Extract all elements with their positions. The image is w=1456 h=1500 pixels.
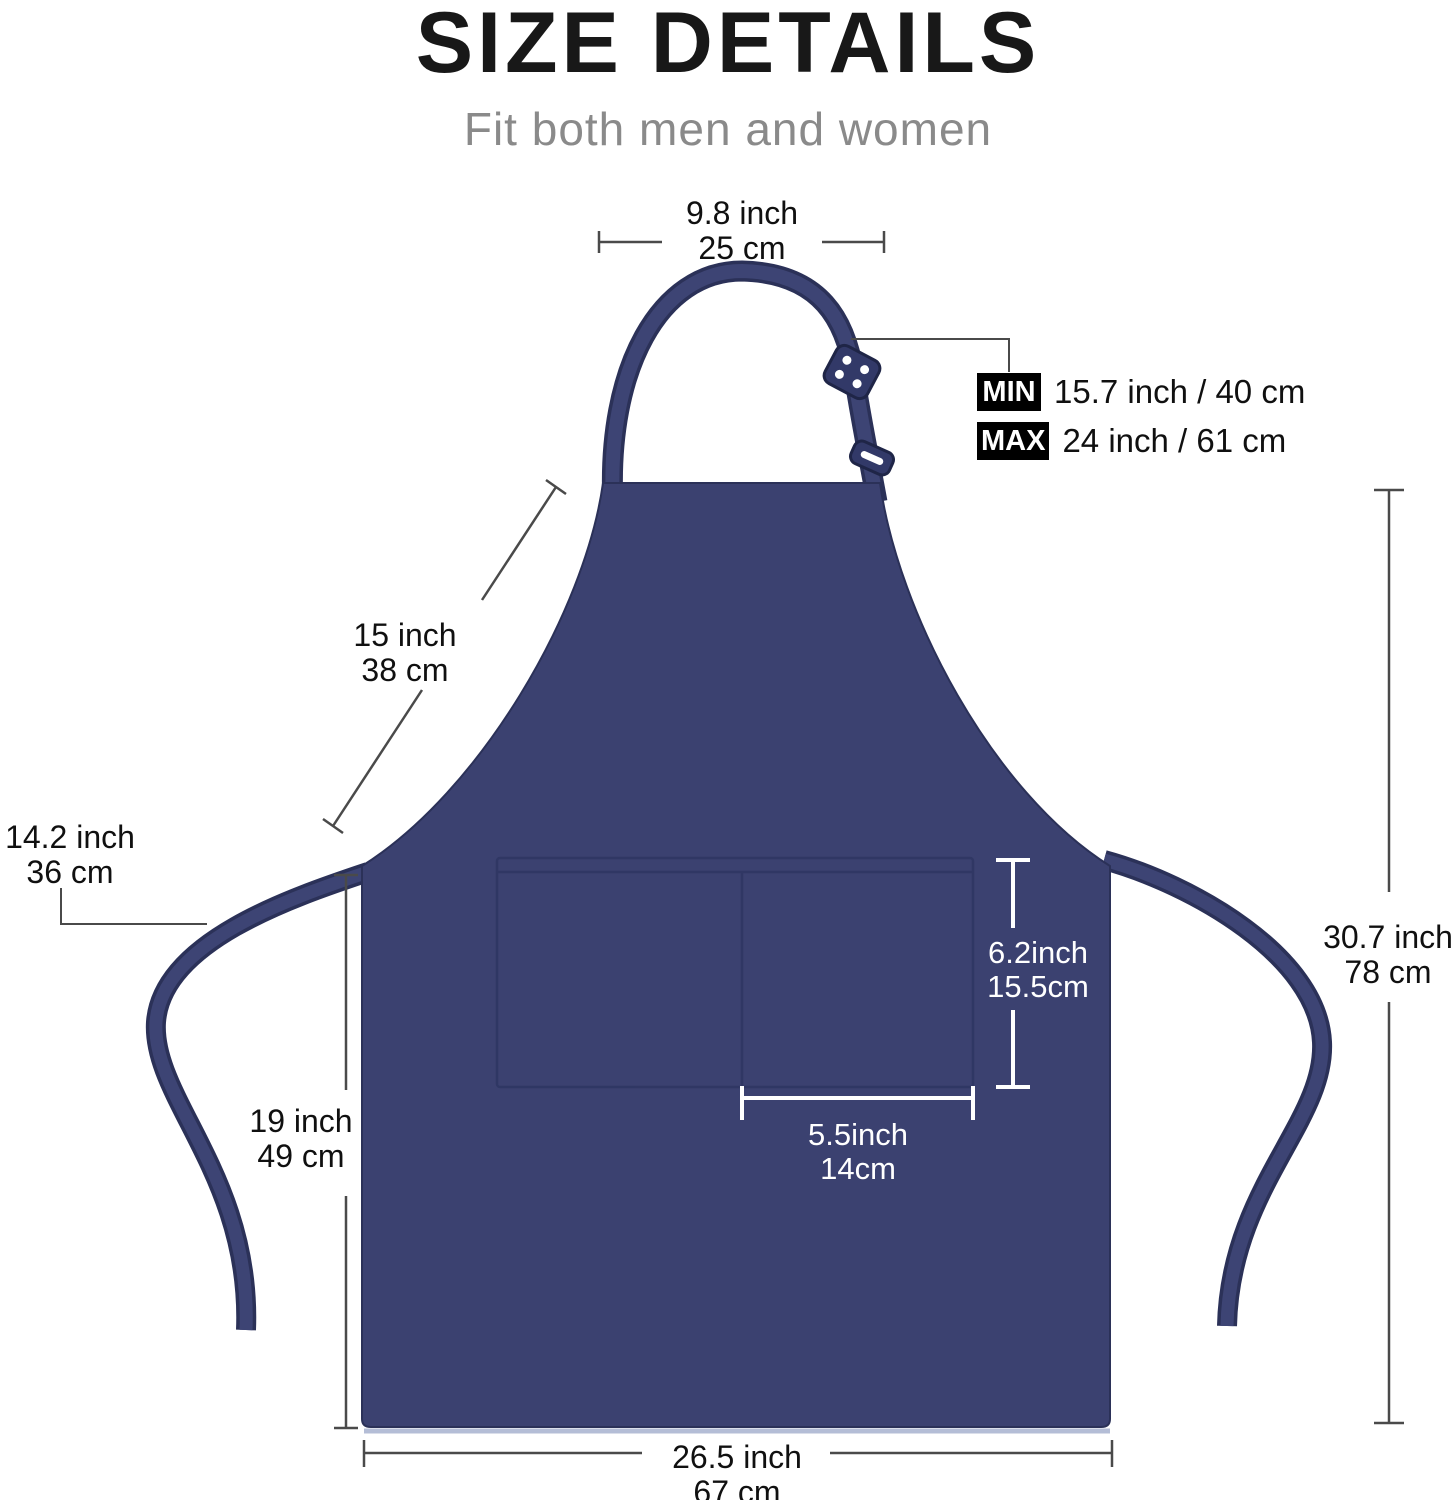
strap-min-row: MIN 15.7 inch / 40 cm bbox=[977, 373, 1305, 411]
waist-tie-inch: 14.2 inch bbox=[5, 820, 135, 855]
total-height-inch: 30.7 inch bbox=[1323, 920, 1453, 955]
waist-tie-cm: 36 cm bbox=[5, 855, 135, 890]
min-value: 15.7 inch / 40 cm bbox=[1054, 373, 1305, 411]
pocket-height-inch: 6.2inch bbox=[987, 936, 1089, 970]
strap-slider bbox=[848, 438, 896, 477]
bottom-width-label: 26.5 inch 67 cm bbox=[672, 1440, 802, 1500]
bottom-width-cm: 67 cm bbox=[672, 1475, 802, 1500]
bottom-width-inch: 26.5 inch bbox=[672, 1440, 802, 1475]
pocket-width-inch: 5.5inch bbox=[808, 1118, 908, 1152]
min-badge: MIN bbox=[977, 373, 1041, 411]
page-subtitle: Fit both men and women bbox=[0, 102, 1456, 156]
max-badge: MAX bbox=[977, 422, 1049, 460]
waist-tie-left bbox=[156, 872, 368, 1330]
skirt-height-inch: 19 inch bbox=[249, 1104, 352, 1139]
max-value: 24 inch / 61 cm bbox=[1062, 422, 1286, 460]
pocket-height-label: 6.2inch 15.5cm bbox=[987, 936, 1089, 1004]
tie-connector-line bbox=[61, 888, 207, 924]
total-height-label: 30.7 inch 78 cm bbox=[1323, 920, 1453, 990]
total-height-cm: 78 cm bbox=[1323, 955, 1453, 990]
waist-tie-label: 14.2 inch 36 cm bbox=[5, 820, 135, 890]
neck-width-cm: 25 cm bbox=[686, 231, 798, 266]
skirt-height-label: 19 inch 49 cm bbox=[249, 1104, 352, 1174]
pocket-width-label: 5.5inch 14cm bbox=[808, 1118, 908, 1186]
strap-max-row: MAX 24 inch / 61 cm bbox=[977, 422, 1305, 460]
neck-width-inch: 9.8 inch bbox=[686, 196, 798, 231]
waist-tie-right bbox=[1104, 860, 1322, 1326]
bib-side-inch: 15 inch bbox=[353, 618, 456, 653]
bib-side-cm: 38 cm bbox=[353, 653, 456, 688]
strap-adjust-label: MIN 15.7 inch / 40 cm MAX 24 inch / 61 c… bbox=[977, 373, 1305, 471]
page-title: SIZE DETAILS bbox=[0, 0, 1456, 86]
pocket-height-cm: 15.5cm bbox=[987, 970, 1089, 1004]
neck-width-label: 9.8 inch 25 cm bbox=[686, 196, 798, 266]
strap-buckle bbox=[821, 342, 883, 402]
bib-side-label: 15 inch 38 cm bbox=[353, 618, 456, 688]
size-details-diagram: SIZE DETAILS Fit both men and women 9.8 … bbox=[0, 0, 1456, 1500]
pocket-width-cm: 14cm bbox=[808, 1152, 908, 1186]
skirt-height-cm: 49 cm bbox=[249, 1139, 352, 1174]
